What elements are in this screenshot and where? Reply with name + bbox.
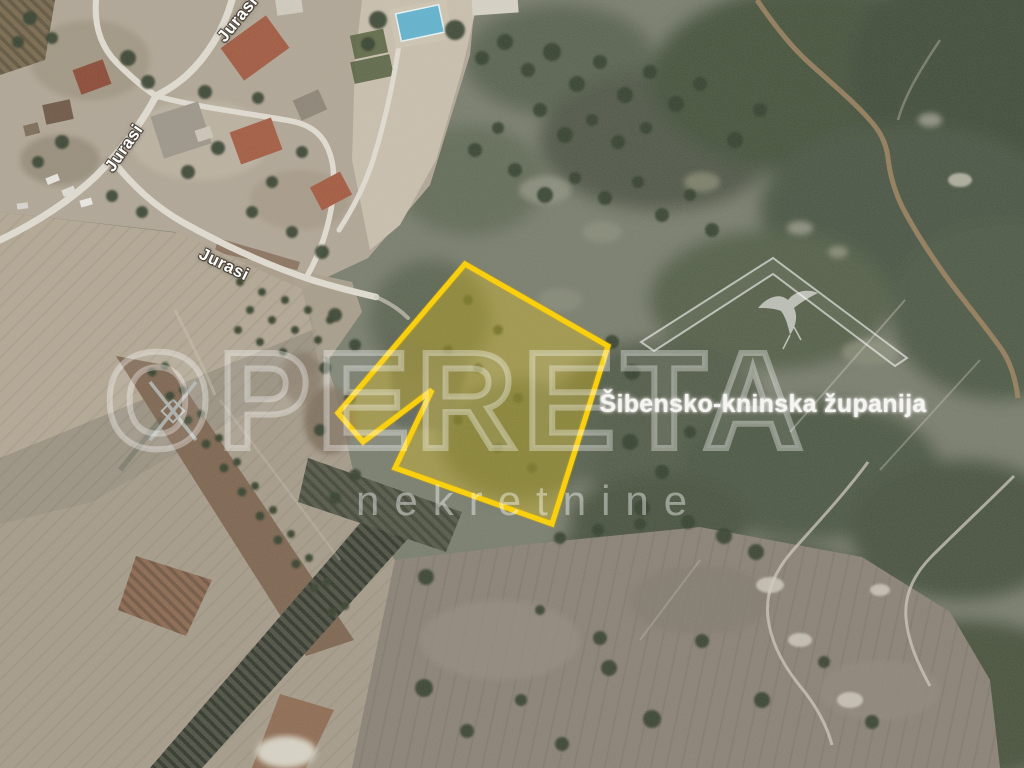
- region-overlay: Šibensko-kninska županija: [598, 238, 928, 428]
- swallow-icon: [758, 291, 818, 335]
- roof-swallow-logo-icon: [598, 238, 928, 388]
- satellite-map: OPERETA nekretnine Šibensko-kninska župa…: [0, 0, 1024, 768]
- watermark-subtitle: nekretnine: [356, 477, 702, 525]
- roof-ribbon: [641, 258, 907, 366]
- region-label: Šibensko-kninska županija: [598, 390, 928, 419]
